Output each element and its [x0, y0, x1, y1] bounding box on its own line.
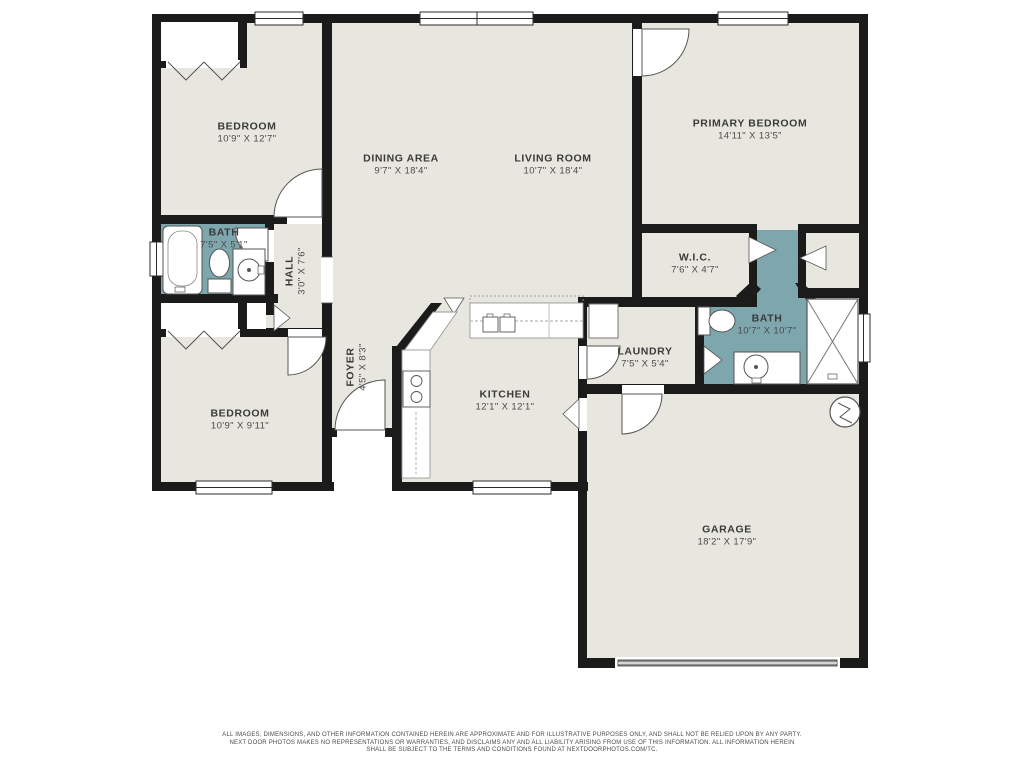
window-icon — [255, 12, 303, 25]
linen-closet — [247, 303, 266, 329]
disclaimer-line: SHALL BE SUBJECT TO THE TERMS AND CONDIT… — [0, 747, 1024, 755]
laundry-appliance-icon — [589, 304, 618, 338]
window-icon — [196, 481, 272, 494]
bathtub-icon — [163, 226, 202, 294]
disclaimer-line: ALL IMAGES, DIMENSIONS, AND OTHER INFORM… — [0, 732, 1024, 740]
floorplan-drawing — [0, 0, 1024, 768]
cased-opening — [321, 257, 333, 303]
window-icon — [857, 314, 870, 362]
disclaimer: ALL IMAGES, DIMENSIONS, AND OTHER INFORM… — [0, 732, 1024, 755]
garage-door-icon — [615, 657, 840, 669]
floorplan-canvas: BEDROOM 10'9" X 12'7" DINING AREA 9'7" X… — [0, 0, 1024, 768]
water-heater-icon — [830, 397, 860, 427]
window-icon — [420, 12, 533, 25]
sink-vanity-icon — [233, 249, 265, 295]
bedroom1-closet — [161, 22, 238, 61]
sink-vanity-icon — [734, 352, 800, 384]
kitchen-range-icon — [403, 371, 430, 407]
window-icon — [473, 481, 551, 494]
window-icon — [718, 12, 788, 25]
laundry-fixtures — [589, 304, 618, 338]
disclaimer-line: NEXT DOOR PHOTOS MAKES NO REPRESENTATION… — [0, 740, 1024, 748]
shower-icon — [807, 299, 858, 384]
bedroom2-closet — [161, 303, 238, 329]
toilet-icon — [208, 249, 231, 293]
window-icon — [150, 242, 163, 276]
